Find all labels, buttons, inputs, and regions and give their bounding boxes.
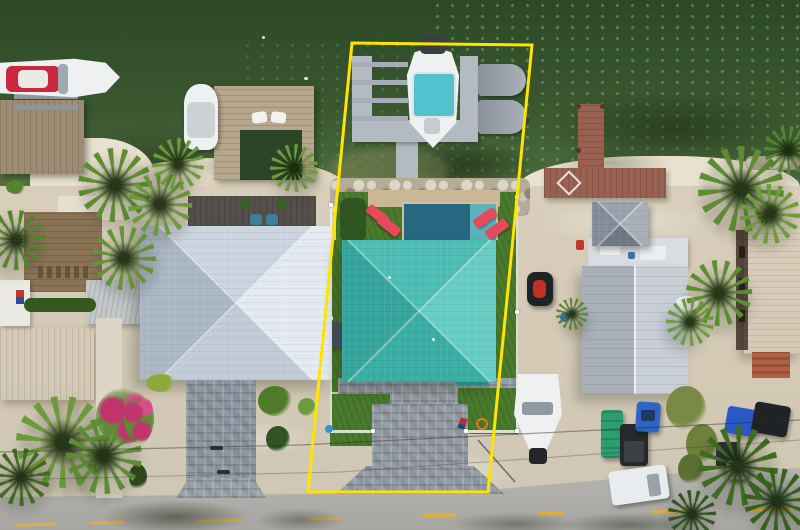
outboard-motors [420,36,446,54]
driveway-dark-bar-1 [210,446,223,450]
jet-ski-red-seat [533,280,546,298]
boatlift-arm-3 [352,98,408,103]
dock-chair-1 [251,111,267,124]
red-dock-stem [578,104,604,172]
boatlift-arm-4 [352,116,408,121]
white-house-drive-flare [176,478,266,498]
orange-house-stairs [752,352,790,378]
boatlift-arm-1 [352,62,408,67]
bougainvillea-2 [124,392,154,444]
deck-blue-item [628,252,635,259]
jetski-lift-1 [478,64,526,96]
boat-trailer-windshield [522,402,553,415]
shrub-beach-small [6,180,26,194]
deck-planter-2 [276,198,288,210]
blue-kiddie-item [325,425,333,433]
speedboat-windshield [58,64,68,94]
boat-bimini-top [412,72,456,118]
tree-shadow-road-1 [100,500,250,530]
shed-sign [16,290,24,304]
roof-vent-dot-1 [388,276,391,279]
piling-2 [600,104,605,109]
deck-planter-1 [240,198,252,210]
wood-dock-topleft [0,100,84,174]
piling-3 [576,148,581,153]
piling-1 [576,104,581,109]
fence-post-7 [371,429,375,433]
teal-house-roof [342,240,496,382]
deck-table-2 [640,246,666,260]
dock-right-arm [460,56,478,142]
deck-debris-row [38,266,90,278]
front-shrub-2 [258,386,292,416]
water-bird-dot-1 [304,77,308,80]
front-shrub-3 [298,398,316,416]
orange-ring [476,418,488,430]
water-bird-dot-2 [262,36,265,39]
gazebo-roof [592,202,648,246]
boat-trailer-engine [529,448,547,464]
fence-post-8 [464,429,468,433]
driveway-dark-bar-2 [217,470,230,474]
hedge-left-lot [24,298,96,312]
jetski-lift-2 [478,100,526,134]
sago-palm [266,426,290,452]
moored-boat-cover [187,102,215,138]
orange-tile-roof-left [0,328,94,400]
boat-bow-deck [424,118,440,134]
roof-vent-dot-2 [432,338,435,341]
boatlift-arm-2 [352,80,408,85]
speedboat-sunpad [18,70,48,88]
hedge-pool-left [340,198,366,242]
front-shrub-1 [146,374,176,392]
tree-shadow-road-2 [255,508,345,530]
fence-post-4 [515,195,519,199]
pickup-bed [624,441,644,462]
blue-car-left-glass [641,410,655,421]
deck-blue-chair-1 [250,214,262,225]
fence-front-left [331,430,373,433]
dock-chair-2 [270,111,286,124]
aerial-photo-scene [0,0,800,530]
deck-blue-chair-2 [266,214,278,225]
fence-post-6 [515,429,519,433]
fence-post-1 [329,203,333,207]
red-cooler [576,240,584,250]
white-house-roof [140,226,332,380]
fence-front-right [466,430,518,433]
fence-post-5 [515,310,519,314]
turf-side-right [494,240,518,398]
